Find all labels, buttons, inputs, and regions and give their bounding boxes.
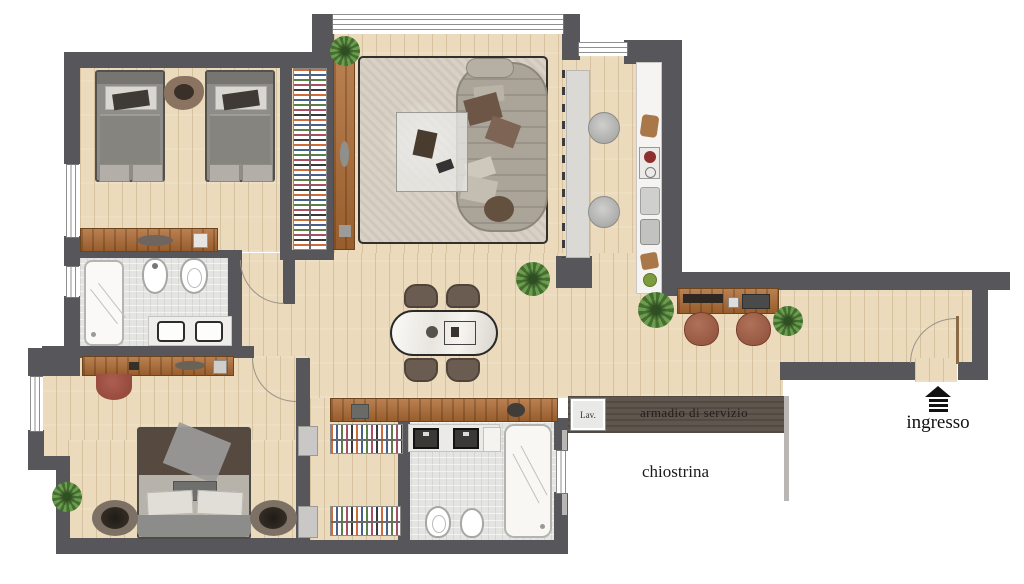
wall <box>64 236 80 266</box>
toilet <box>180 258 208 294</box>
decor <box>436 159 454 174</box>
seat <box>187 268 202 288</box>
dining-chair <box>446 358 480 382</box>
arrow-head <box>925 386 951 397</box>
coffee-table <box>396 112 468 192</box>
faucet <box>152 263 158 269</box>
console <box>330 398 558 422</box>
wall <box>280 64 292 252</box>
wall <box>780 362 915 380</box>
books <box>683 294 723 303</box>
kitchen-counter <box>636 62 662 294</box>
rail <box>331 439 402 441</box>
wall <box>64 52 316 68</box>
closet-door-panel <box>298 506 318 538</box>
dining-chair <box>404 284 438 308</box>
pouf <box>92 500 138 536</box>
breakfast-bar <box>566 70 590 258</box>
wall <box>556 256 592 288</box>
bench-cushion <box>99 164 130 182</box>
bench-cushion <box>242 164 273 182</box>
door-leaf <box>956 316 959 364</box>
decor <box>174 84 194 100</box>
bench-cushion <box>209 164 240 182</box>
wardrobe-hanger-rack <box>293 68 327 250</box>
drain <box>540 524 545 529</box>
plant <box>101 507 129 529</box>
pillow <box>146 490 193 516</box>
wardrobe-hanger-rack <box>330 506 401 536</box>
plant <box>259 507 287 529</box>
bidet <box>142 258 168 294</box>
plant <box>330 36 360 66</box>
chair <box>684 312 719 346</box>
headboard <box>137 515 251 537</box>
decor <box>426 326 438 338</box>
drawer <box>339 225 351 237</box>
window <box>66 164 79 238</box>
sideboard <box>333 54 355 250</box>
laundry-box: Lav. <box>571 399 605 430</box>
courtyard-edge <box>784 396 789 501</box>
vanity <box>408 424 500 452</box>
handle <box>340 141 349 167</box>
burner <box>645 167 656 178</box>
bowl <box>643 273 657 287</box>
shower-line <box>520 446 547 496</box>
shower-line <box>90 289 118 324</box>
laptop <box>742 294 770 309</box>
faucet <box>463 432 469 436</box>
wall <box>283 258 295 304</box>
single-bed <box>95 70 165 182</box>
rail <box>309 69 311 249</box>
sink <box>413 428 439 449</box>
sofa-pillow <box>484 196 514 222</box>
blanket <box>100 114 160 164</box>
decor <box>175 361 205 370</box>
shower-line <box>98 283 126 318</box>
arrow-bar <box>929 399 948 402</box>
decor <box>507 403 525 417</box>
dining-chair <box>404 358 438 382</box>
sink <box>453 428 479 449</box>
shower <box>84 260 124 346</box>
cutting-board <box>640 114 660 138</box>
wall <box>312 14 334 68</box>
rail <box>331 521 400 523</box>
decor <box>451 327 459 337</box>
window <box>30 376 43 432</box>
decor <box>137 235 173 246</box>
arrow-bar <box>929 404 948 407</box>
shower-line <box>512 454 539 504</box>
decor <box>728 297 739 308</box>
decor <box>213 360 227 374</box>
decor <box>351 404 369 419</box>
decor <box>129 362 139 370</box>
plant <box>516 262 550 296</box>
plant <box>638 292 674 328</box>
entrance-arrow-icon <box>924 386 952 412</box>
plant <box>52 482 82 512</box>
pot <box>644 151 656 163</box>
closet-door-panel <box>298 426 318 456</box>
pillow <box>196 490 243 516</box>
wall <box>662 56 682 296</box>
wall <box>56 538 308 554</box>
courtyard-label: chiostrina <box>598 462 753 482</box>
bench-cushion <box>132 164 163 182</box>
double-bed <box>137 427 251 539</box>
sink <box>157 321 185 342</box>
stove <box>639 147 660 179</box>
wall <box>958 362 972 380</box>
vanity <box>148 316 232 346</box>
decor <box>413 129 438 159</box>
cutting-board <box>640 252 660 271</box>
corridor-floor-lower <box>640 360 783 396</box>
sink <box>640 187 660 215</box>
faucet <box>423 432 429 436</box>
desk <box>677 288 779 314</box>
wall <box>296 540 568 554</box>
floor-plan: Lav. armadio di servizio chiostrina ingr… <box>0 0 1024 584</box>
window <box>556 450 568 494</box>
sink <box>195 321 223 342</box>
headboard <box>207 72 273 84</box>
laundry-label: Lav. <box>573 410 603 420</box>
single-bed <box>205 70 275 182</box>
bidet <box>460 508 484 538</box>
dining-chair <box>446 284 480 308</box>
sofa-arm <box>466 58 514 78</box>
service-wardrobe-label: armadio di servizio <box>608 405 780 421</box>
plant <box>773 306 803 336</box>
decor <box>193 233 208 248</box>
stool <box>588 196 620 228</box>
blanket <box>210 114 270 164</box>
desk <box>80 228 218 252</box>
toilet <box>425 506 451 538</box>
window <box>66 266 79 298</box>
stool <box>588 112 620 144</box>
drain <box>91 332 96 337</box>
shower <box>504 424 552 538</box>
dining-table <box>390 310 498 356</box>
sink <box>640 219 660 245</box>
seat <box>432 515 446 533</box>
cabinet <box>483 427 501 452</box>
pouf <box>250 500 297 536</box>
headboard <box>97 72 163 84</box>
window <box>332 14 564 34</box>
tray <box>444 321 476 345</box>
chair <box>736 312 771 346</box>
entrance-label: ingresso <box>892 412 984 434</box>
chair <box>96 374 132 400</box>
glass-partition <box>562 70 565 258</box>
desk <box>82 356 234 376</box>
wardrobe-hanger-rack <box>330 424 403 454</box>
window <box>578 42 628 56</box>
wall <box>972 288 988 380</box>
wall <box>64 52 80 164</box>
